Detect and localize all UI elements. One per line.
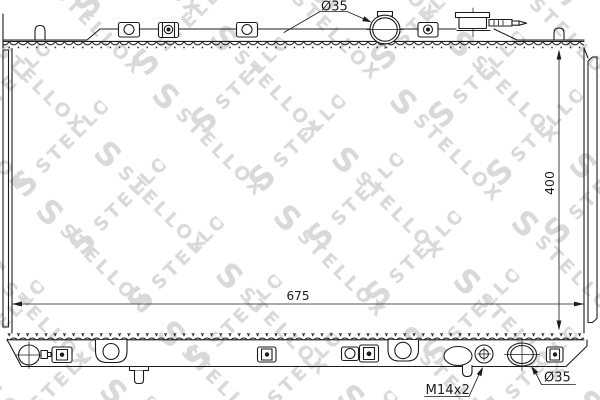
top-bracket-1	[119, 23, 140, 38]
fin-scallops-bottom	[7, 333, 584, 339]
fin-scallops-top	[3, 42, 584, 48]
bottom-fin-band	[7, 333, 584, 340]
radiator-technical-drawing: S STELLOX S STELLOX	[0, 0, 600, 400]
petcock-flange	[130, 367, 149, 371]
boss-tab	[463, 366, 473, 377]
bracket-bolt-dot	[367, 351, 372, 356]
core-width-label: 675	[287, 289, 310, 303]
outlet-diameter-label: Ø35	[544, 371, 571, 386]
core-height-label: 400	[542, 171, 557, 195]
fitting-flange	[456, 13, 490, 18]
drain-stem	[41, 351, 48, 359]
filler-diameter-label: Ø35	[321, 0, 348, 15]
drain-tip	[48, 353, 52, 357]
bottom-bracket-3a	[342, 347, 359, 361]
drain-thread-label: M14x2	[426, 383, 470, 398]
top-fin-band	[3, 41, 584, 48]
drawing-canvas: S STELLOX S STELLOX	[0, 0, 600, 400]
drain-plug-boss	[475, 345, 493, 363]
bracket-bolt-dot	[553, 352, 557, 356]
petcock-stem	[135, 371, 144, 384]
bracket-bolt-dot	[426, 28, 430, 32]
fitting-body	[459, 18, 487, 29]
bracket-bolt-dot	[265, 352, 269, 356]
bracket-bolt-dot	[167, 28, 171, 32]
inlet-pipe-opening	[444, 347, 472, 366]
bottom-lug-1	[96, 340, 128, 363]
bracket-bolt-dot	[60, 353, 64, 357]
bottom-lug-2	[388, 340, 419, 361]
tube-collar	[512, 21, 519, 25]
top-bracket-3	[237, 23, 258, 38]
